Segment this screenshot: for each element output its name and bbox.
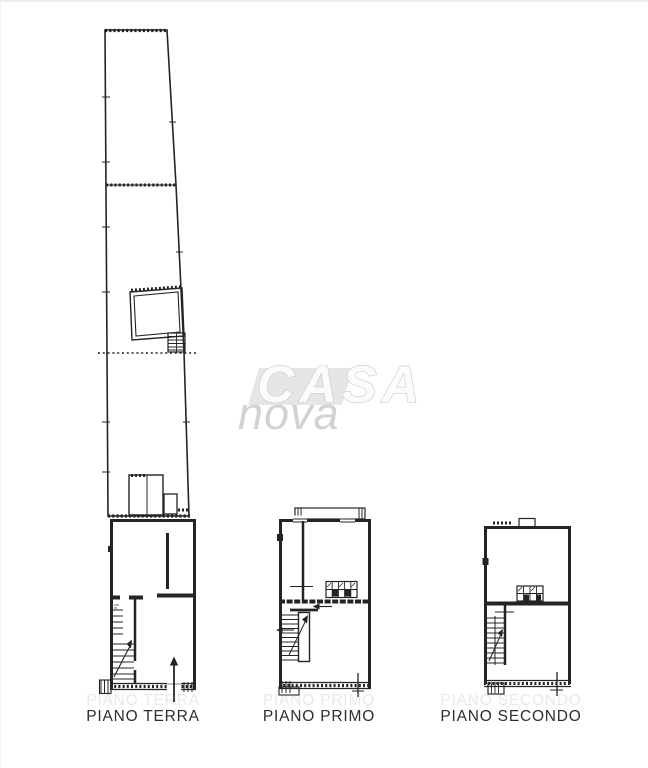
- courtyard-outbuildings: [129, 475, 188, 515]
- outer-walls: [484, 526, 571, 687]
- outer-walls: [279, 519, 371, 689]
- ghost-label-piano-terra: PIANO TERRA: [86, 692, 200, 709]
- label-piano-terra: PIANO TERRA: [86, 708, 200, 725]
- courtyard-boundary: [105, 30, 189, 516]
- outer-walls: [110, 519, 196, 690]
- second-floor-plan: [483, 519, 572, 697]
- watermark: CASA nova: [238, 356, 424, 439]
- stair-direction-arrow: [114, 640, 132, 678]
- floorplan-drawing: CASA nova: [1, 2, 648, 768]
- radiator-grid: [326, 582, 357, 598]
- stair-direction-arrow: [489, 629, 503, 661]
- window-mark: [277, 534, 283, 541]
- ghost-label-piano-secondo: PIANO SECONDO: [440, 692, 581, 709]
- boundary-ticks: [102, 97, 190, 472]
- site-plan: [98, 30, 198, 516]
- window-mark: [108, 546, 113, 552]
- first-floor-plan: [276, 508, 371, 697]
- label-piano-secondo: PIANO SECONDO: [440, 708, 581, 725]
- radiator-grid: [517, 586, 543, 601]
- label-piano-primo: PIANO PRIMO: [263, 708, 375, 725]
- stair-treads: [486, 616, 505, 665]
- window-mark: [483, 558, 489, 565]
- watermark-nova-text: nova: [238, 388, 340, 439]
- ground-floor-plan: [100, 519, 197, 702]
- annex-building: [130, 287, 185, 352]
- floorplan-page: CASA nova: [0, 0, 648, 768]
- ghost-label-piano-primo: PIANO PRIMO: [263, 692, 375, 709]
- floor-labels: PIANO TERRA PIANO PRIMO PIANO SECONDO PI…: [86, 692, 581, 725]
